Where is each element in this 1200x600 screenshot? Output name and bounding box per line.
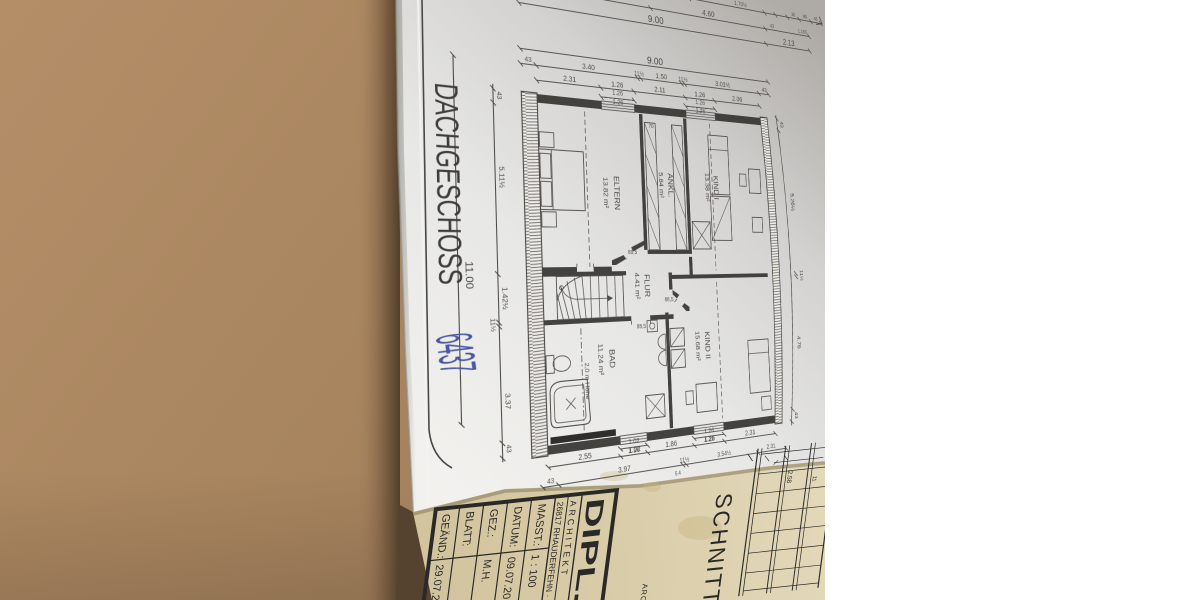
svg-text:43: 43 bbox=[770, 24, 774, 30]
svg-text:4.76: 4.76 bbox=[796, 336, 802, 349]
svg-text:1.26: 1.26 bbox=[695, 99, 705, 107]
svg-text:43: 43 bbox=[793, 412, 798, 420]
svg-text:13.82 m²: 13.82 m² bbox=[601, 177, 610, 209]
svg-text:1.26: 1.26 bbox=[612, 89, 624, 97]
svg-text:1.26: 1.26 bbox=[704, 435, 714, 444]
svg-text:1.86: 1.86 bbox=[665, 439, 677, 449]
svg-text:11.24 m²: 11.24 m² bbox=[596, 343, 605, 376]
svg-text:M.H.: M.H. bbox=[478, 559, 493, 583]
svg-text:88,5: 88,5 bbox=[637, 324, 646, 331]
svg-text:2,0 m Höhe: 2,0 m Höhe bbox=[583, 362, 591, 400]
svg-text:1 : 100: 1 : 100 bbox=[525, 554, 541, 589]
svg-text:1.50: 1.50 bbox=[655, 72, 667, 81]
svg-text:10: 10 bbox=[791, 12, 795, 18]
svg-text:15.68 m²: 15.68 m² bbox=[694, 331, 703, 362]
svg-text:88,5: 88,5 bbox=[628, 250, 637, 256]
svg-text:45: 45 bbox=[814, 17, 818, 23]
svg-text:43: 43 bbox=[504, 444, 512, 454]
svg-text:5.26½: 5.26½ bbox=[789, 193, 795, 211]
svg-text:1.26: 1.26 bbox=[611, 80, 624, 90]
svg-text:11½: 11½ bbox=[798, 270, 804, 282]
svg-text:4.41 m²: 4.41 m² bbox=[633, 273, 642, 300]
svg-text:KIND II: KIND II bbox=[703, 331, 712, 359]
svg-text:2.31: 2.31 bbox=[745, 428, 756, 437]
svg-text:2.11: 2.11 bbox=[654, 86, 665, 95]
svg-text:2.06: 2.06 bbox=[732, 95, 743, 104]
svg-text:11½: 11½ bbox=[634, 69, 645, 78]
svg-text:9.00: 9.00 bbox=[647, 55, 664, 68]
svg-text:BAD: BAD bbox=[607, 349, 617, 369]
svg-text:88,5: 88,5 bbox=[665, 297, 674, 303]
svg-text:3.40: 3.40 bbox=[582, 62, 595, 72]
svg-text:09.07.2013: 09.07.2013 bbox=[498, 556, 517, 600]
svg-text:1.26: 1.26 bbox=[704, 427, 714, 436]
svg-text:43: 43 bbox=[525, 56, 533, 65]
svg-text:70: 70 bbox=[648, 124, 653, 130]
svg-text:6437: 6437 bbox=[424, 328, 487, 380]
svg-text:11½: 11½ bbox=[679, 455, 690, 465]
svg-text:ARCHITEKT · DIPL.-ING.: ARCHITEKT · DIPL.-ING. bbox=[627, 583, 650, 600]
svg-text:90: 90 bbox=[803, 15, 807, 21]
svg-text:1.26: 1.26 bbox=[694, 90, 705, 99]
svg-text:ELTERN: ELTERN bbox=[612, 176, 622, 211]
svg-text:11½: 11½ bbox=[678, 75, 688, 84]
svg-text:DACHGESCHOSS: DACHGESCHOSS bbox=[427, 81, 469, 285]
svg-text:2.31: 2.31 bbox=[563, 74, 576, 84]
svg-text:3.37: 3.37 bbox=[503, 393, 512, 410]
svg-text:5.11½: 5.11½ bbox=[497, 166, 506, 188]
svg-text:43: 43 bbox=[547, 477, 555, 486]
svg-text:5.4: 5.4 bbox=[675, 470, 681, 477]
svg-text:1.02: 1.02 bbox=[628, 437, 640, 446]
svg-text:43: 43 bbox=[779, 121, 784, 128]
svg-text:43: 43 bbox=[762, 87, 768, 94]
svg-text:FLUR: FLUR bbox=[643, 274, 653, 297]
svg-text:2.31: 2.31 bbox=[766, 443, 776, 451]
svg-text:43: 43 bbox=[495, 91, 503, 100]
svg-text:1.42½: 1.42½ bbox=[500, 287, 509, 310]
